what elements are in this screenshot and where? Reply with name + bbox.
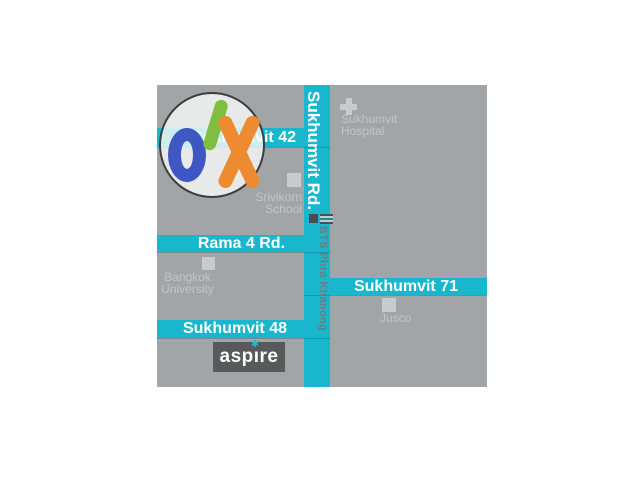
university-label: Bangkok University	[157, 271, 230, 295]
school-marker	[287, 173, 301, 187]
road-label-sukhumvit-48: Sukhumvit 48	[157, 320, 330, 338]
olx-letter-o-icon: o	[168, 128, 206, 182]
olx-letter-x-icon: x	[214, 112, 264, 192]
road-rama-4: Rama 4 Rd.	[157, 235, 330, 252]
road-sukhumvit-48: Sukhumvit 48	[157, 320, 330, 338]
aspire-star-icon: ✱	[251, 339, 259, 350]
road-label-sukhumvit-71: Sukhumvit 71	[304, 278, 487, 295]
bts-train-icon	[320, 214, 333, 224]
jusco-marker	[382, 298, 396, 312]
road-label-rama-4: Rama 4 Rd.	[157, 235, 330, 252]
jusco-label: Jusco	[380, 312, 411, 324]
university-marker	[202, 257, 215, 270]
bts-station-label: BTS Phra Khanong	[317, 226, 329, 331]
road-label-sukhumvit-rd: Sukhumvit Rd.	[305, 91, 322, 210]
road-sukhumvit-71: Sukhumvit 71	[304, 278, 487, 295]
hospital-label: Sukhumvit Hospital	[341, 113, 397, 137]
bts-station-marker	[309, 214, 318, 223]
aspire-logo-text-right: re	[260, 346, 279, 368]
aspire-logo: asp✱ıre	[213, 342, 285, 372]
map-canvas: Sukhumvit Rd. BTS Phra Khanong Sukhumvit…	[157, 85, 487, 387]
university-label-line2: University	[157, 283, 230, 295]
aspire-logo-text-left: asp	[220, 346, 254, 368]
aspire-logo-i: ✱ı	[254, 346, 260, 368]
school-label-line2: School	[217, 203, 302, 215]
hospital-label-line2: Hospital	[341, 125, 397, 137]
